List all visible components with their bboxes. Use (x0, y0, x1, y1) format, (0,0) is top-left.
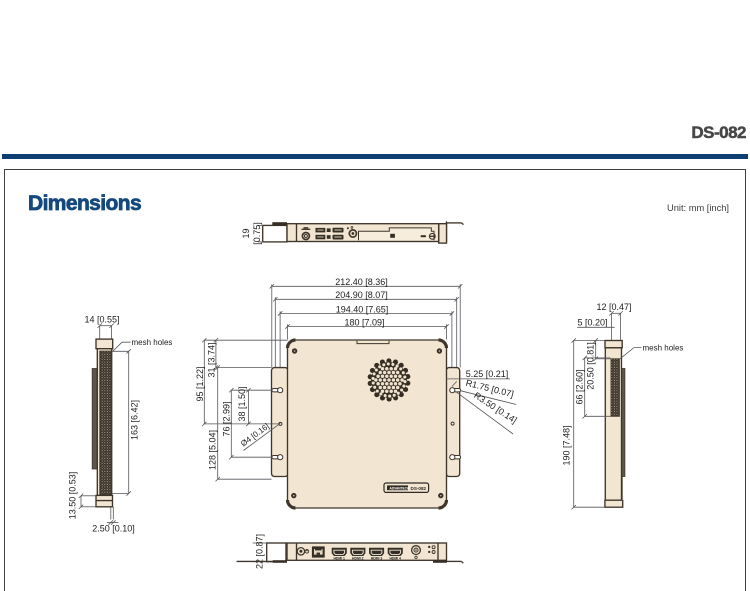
svg-text:194.40 [7.65]: 194.40 [7.65] (336, 304, 389, 314)
svg-text:ADVANTECH: ADVANTECH (390, 486, 410, 490)
svg-text:38 [1.50]: 38 [1.50] (237, 386, 247, 421)
svg-text:204.90 [8.07]: 204.90 [8.07] (335, 290, 388, 300)
svg-text:HDMI 3: HDMI 3 (371, 557, 383, 561)
svg-text:5.25 [0.21]: 5.25 [0.21] (466, 369, 509, 379)
svg-text:19: 19 (241, 228, 251, 238)
svg-text:[0.75]: [0.75] (252, 222, 262, 245)
svg-text:163 [6.42]: 163 [6.42] (129, 400, 139, 440)
svg-text:13.50 [0.53]: 13.50 [0.53] (68, 472, 78, 520)
svg-text:R1.75 [0.07]: R1.75 [0.07] (465, 378, 515, 400)
svg-text:HDMI 4: HDMI 4 (389, 557, 401, 561)
svg-text:95 [1.22]: 95 [1.22] (195, 366, 205, 401)
svg-text:190 [7.48]: 190 [7.48] (562, 425, 572, 465)
svg-text:12 [0.47]: 12 [0.47] (596, 302, 631, 312)
svg-text:Ø4 [0.16]: Ø4 [0.16] (239, 422, 271, 449)
svg-text:76 [2.99]: 76 [2.99] (221, 401, 231, 436)
svg-text:DS-082: DS-082 (411, 486, 427, 491)
svg-text:HDMI 1: HDMI 1 (333, 557, 345, 561)
svg-text:2.50 [0.10]: 2.50 [0.10] (92, 524, 135, 534)
svg-text:212.40 [8.36]: 212.40 [8.36] (335, 277, 388, 287)
svg-text:HDMI 2: HDMI 2 (352, 557, 364, 561)
svg-text:20.50 [0.81]: 20.50 [0.81] (585, 342, 595, 390)
svg-text:mesh holes: mesh holes (643, 344, 684, 353)
svg-text:180 [7.09]: 180 [7.09] (344, 317, 384, 327)
svg-text:mesh holes: mesh holes (132, 338, 173, 347)
svg-text:14 [0.55]: 14 [0.55] (84, 315, 119, 325)
svg-text:22 [0.87]: 22 [0.87] (254, 534, 264, 569)
svg-text:66 [2.60]: 66 [2.60] (575, 369, 585, 404)
svg-text:31 [3.74]: 31 [3.74] (206, 342, 216, 377)
svg-text:128 [5.04]: 128 [5.04] (208, 430, 218, 470)
svg-text:5 [0.20]: 5 [0.20] (577, 317, 607, 327)
